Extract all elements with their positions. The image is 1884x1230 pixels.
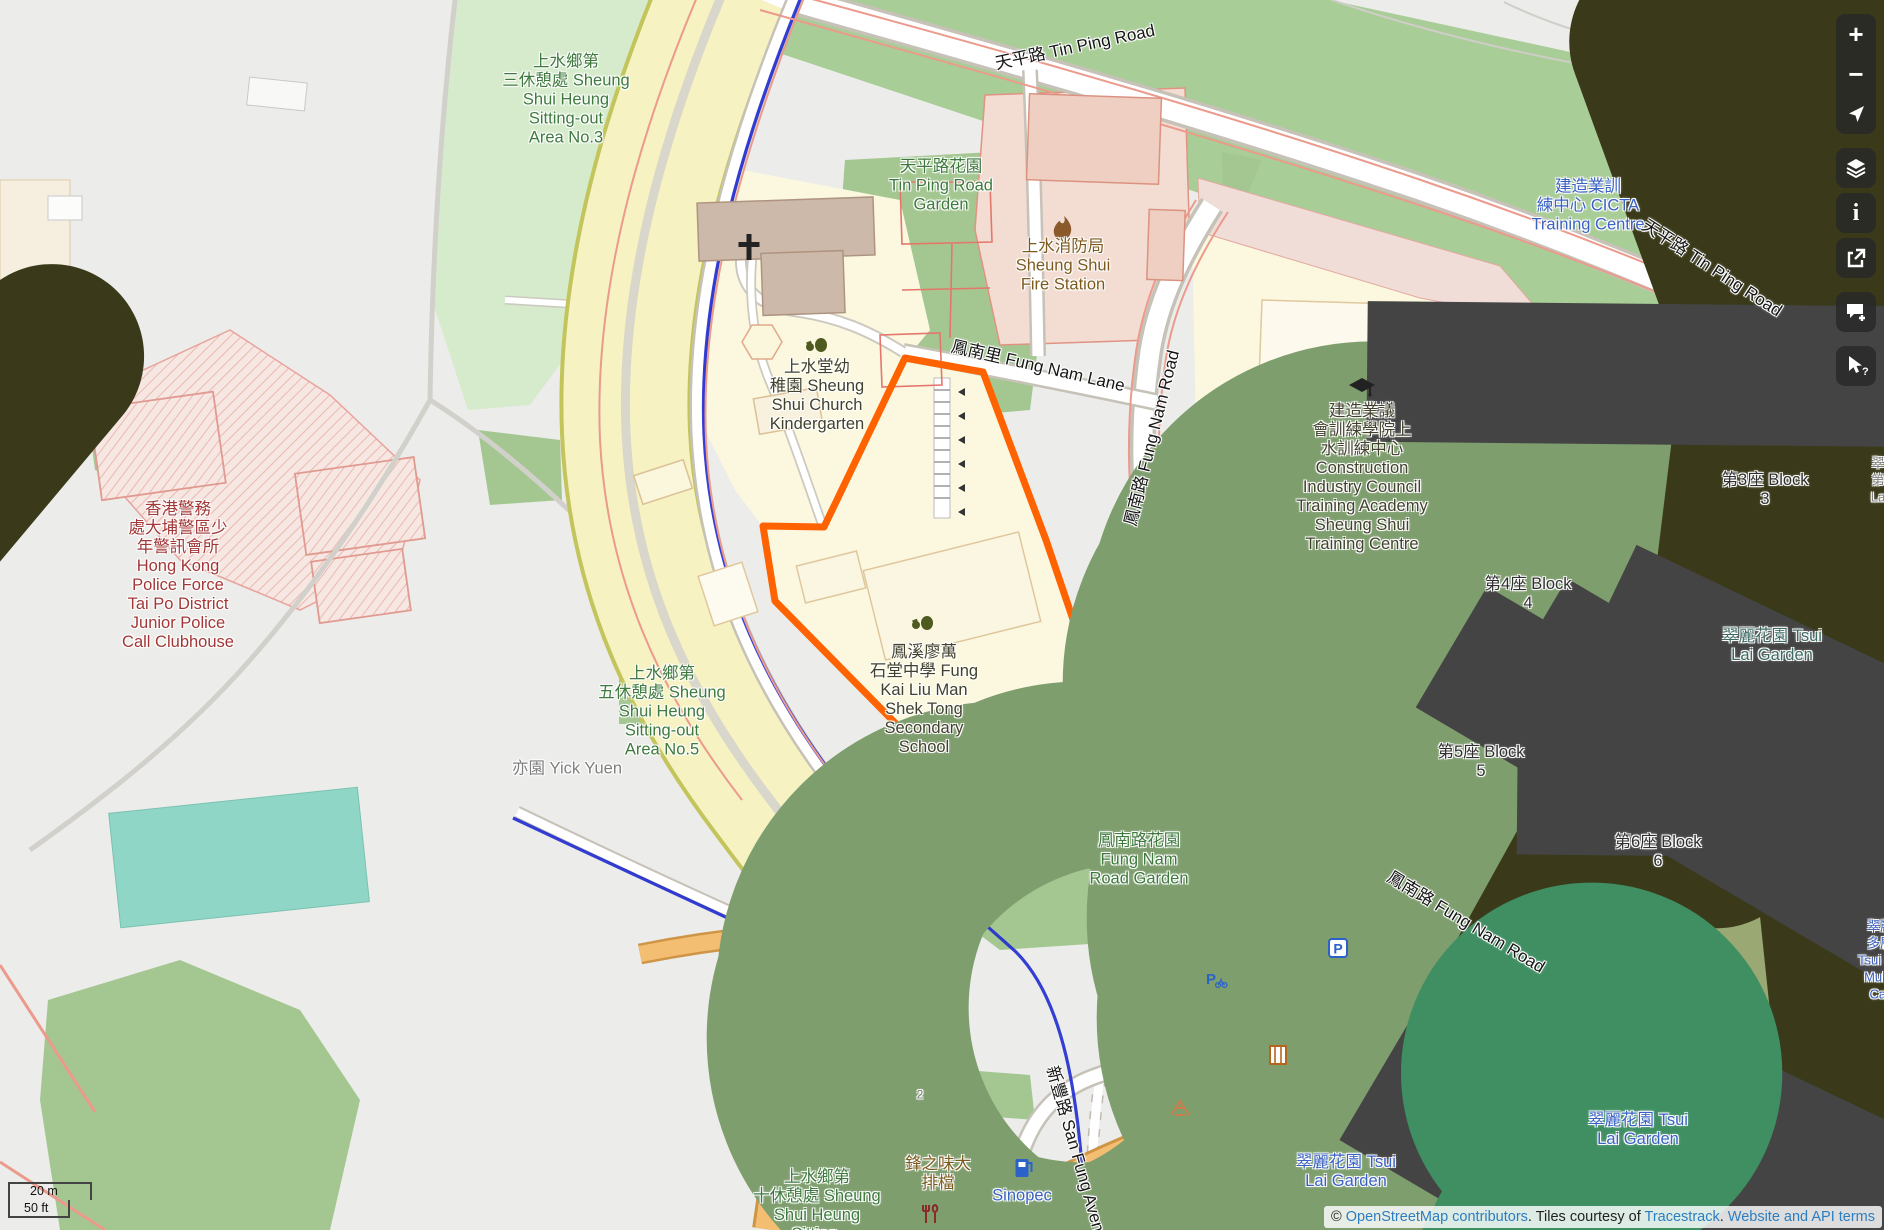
attribution: © OpenStreetMap contributors. Tiles cour…: [1324, 1206, 1882, 1228]
share-button[interactable]: [1836, 238, 1876, 278]
map-key-button[interactable]: i: [1836, 193, 1876, 233]
query-features-button[interactable]: ?: [1836, 346, 1876, 386]
layers-control: [1836, 148, 1876, 188]
info-icon: i: [1853, 200, 1860, 227]
query-features-control: ?: [1836, 346, 1876, 386]
svg-text:?: ?: [1862, 366, 1868, 378]
copyright-text: ©: [1331, 1209, 1346, 1225]
note-icon: [1844, 300, 1868, 324]
layers-icon: [1845, 157, 1867, 179]
minus-icon: −: [1848, 59, 1863, 90]
scale-bar: 20 m 50 ft: [8, 1182, 92, 1218]
tiles-text: . Tiles courtesy of: [1528, 1209, 1645, 1225]
map-key-control: i: [1836, 193, 1876, 233]
scale-metric: 20 m: [8, 1182, 92, 1200]
add-note-button[interactable]: [1836, 292, 1876, 332]
map-canvas[interactable]: P P: [0, 0, 1884, 1230]
parking-icon: P: [1329, 939, 1347, 957]
locate-button[interactable]: [1836, 94, 1876, 134]
query-cursor-icon: ?: [1844, 354, 1868, 378]
church-building: [697, 197, 875, 261]
footbridge-icon: [1270, 1046, 1286, 1064]
zoom-in-button[interactable]: +: [1836, 14, 1876, 54]
plus-icon: +: [1848, 19, 1863, 50]
terms-link[interactable]: Website and API terms: [1728, 1209, 1875, 1225]
share-icon: [1845, 247, 1867, 269]
add-note-control: [1836, 292, 1876, 332]
osm-contributors-link[interactable]: OpenStreetMap contributors: [1346, 1209, 1528, 1225]
scale-imperial: 50 ft: [8, 1200, 70, 1218]
locate-arrow-icon: [1846, 104, 1866, 124]
map-page: P P 上水鄉第三休憩處 SheungShui HeungSit: [0, 0, 1884, 1230]
layers-button[interactable]: [1836, 148, 1876, 188]
tracestrack-link[interactable]: Tracestrack: [1645, 1209, 1720, 1225]
share-control: [1836, 238, 1876, 278]
svg-text:P: P: [1333, 941, 1342, 957]
fire-station-building: [1027, 94, 1162, 185]
map-controls: + − i: [1836, 14, 1876, 386]
zoom-control-group: + −: [1836, 14, 1876, 134]
svg-text:P: P: [1206, 971, 1216, 988]
zoom-out-button[interactable]: −: [1836, 54, 1876, 94]
separator-text: .: [1720, 1209, 1728, 1225]
